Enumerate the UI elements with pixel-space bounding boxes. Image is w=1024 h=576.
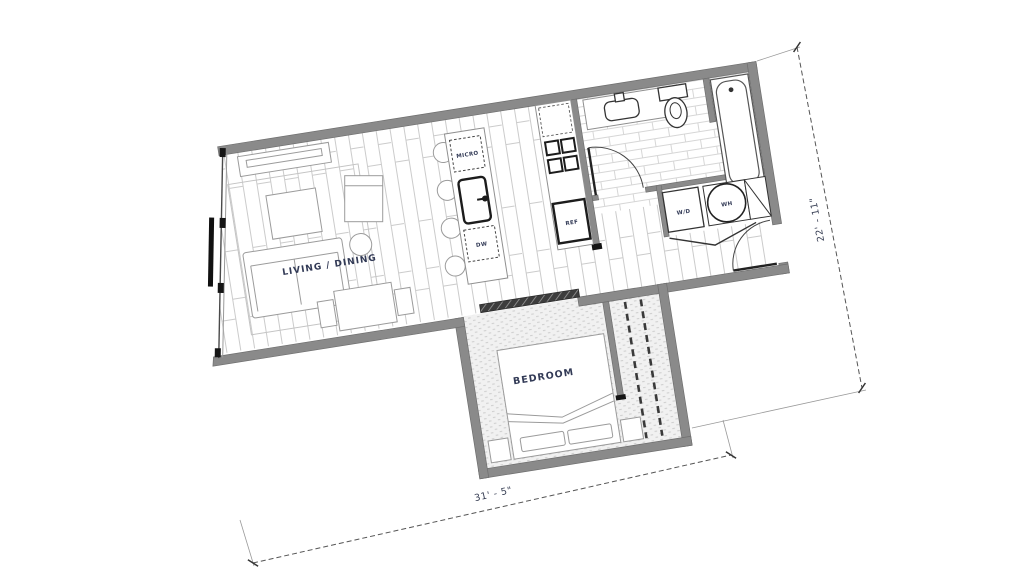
dining-chair-left	[317, 300, 337, 328]
nightstand-right	[620, 417, 643, 442]
floor-plan-page: LIVING / DINING MICRO DW	[0, 0, 1024, 576]
dining-chair-right	[394, 287, 414, 315]
island-sink	[458, 176, 492, 224]
water-heater: WH	[703, 180, 751, 226]
dimension-right-label: 22' - 11"	[808, 196, 827, 242]
coffee-table	[266, 188, 322, 239]
bed	[497, 334, 621, 460]
floor-plan: LIVING / DINING MICRO DW	[0, 0, 1024, 576]
plan-rotated-group: LIVING / DINING MICRO DW	[179, 61, 814, 517]
nightstand-left	[488, 438, 511, 463]
dimension-bottom-label: 31' - 5"	[473, 485, 513, 504]
armchair	[345, 176, 383, 222]
column-marker	[200, 218, 222, 287]
dining-table	[334, 282, 398, 331]
